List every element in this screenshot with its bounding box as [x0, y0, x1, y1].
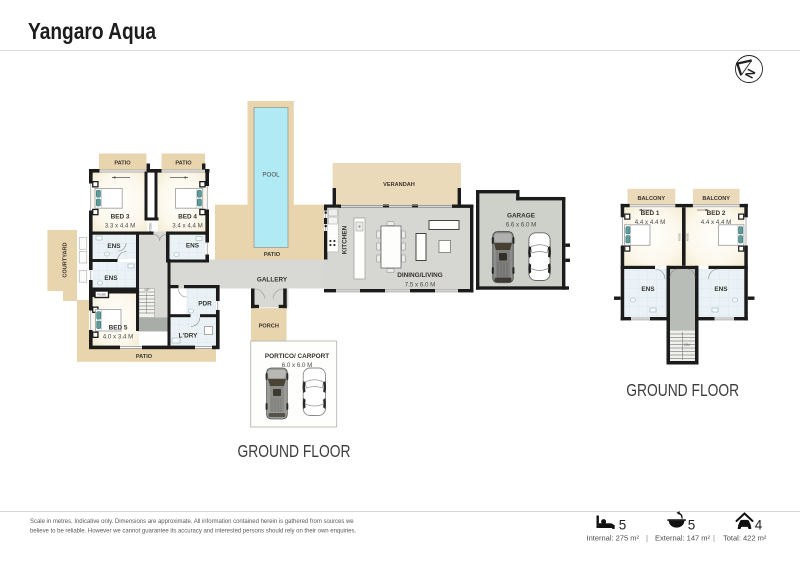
svg-text:6.0 x 6.0 M: 6.0 x 6.0 M	[282, 362, 313, 369]
svg-text:3.4 x 4.4 M: 3.4 x 4.4 M	[172, 223, 203, 230]
svg-text:BED 2: BED 2	[707, 210, 726, 217]
svg-text:7.5 x 6.0 M: 7.5 x 6.0 M	[405, 282, 436, 289]
svg-text:Total: 422 m²: Total: 422 m²	[723, 534, 767, 543]
svg-text:KITCHEN: KITCHEN	[341, 225, 348, 254]
svg-text:believe to be reliable. Howev: believe to be reliable. However we canno…	[30, 529, 356, 535]
svg-text:ENS: ENS	[104, 275, 118, 282]
svg-text:COURTYARD: COURTYARD	[63, 242, 69, 277]
svg-text:Internal: 275 m²: Internal: 275 m²	[587, 534, 640, 543]
svg-text:Scale in metres. Indicative o: Scale in metres. Indicative only. Dimens…	[30, 519, 354, 525]
svg-text:ENS: ENS	[714, 286, 728, 293]
svg-text:External: 147 m²: External: 147 m²	[655, 534, 711, 543]
svg-text:GROUND FLOOR: GROUND FLOOR	[626, 380, 739, 400]
svg-text:BED 4: BED 4	[178, 214, 197, 221]
svg-text:ROBE: ROBE	[686, 233, 690, 242]
svg-text:UP: UP	[145, 288, 151, 292]
svg-text:GALLERY: GALLERY	[257, 277, 288, 284]
svg-text:GROUND FLOOR: GROUND FLOOR	[238, 441, 351, 461]
svg-text:ROBE: ROBE	[97, 293, 106, 297]
svg-text:POOL: POOL	[262, 172, 280, 179]
svg-text:BED 5: BED 5	[109, 325, 128, 332]
svg-text:4.0 x 3.4 M: 4.0 x 3.4 M	[103, 334, 134, 341]
svg-text:L'DRY: L'DRY	[179, 333, 198, 340]
svg-text:3.3 x 4.4 M: 3.3 x 4.4 M	[105, 223, 136, 230]
svg-text:6.6 x 6.0 M: 6.6 x 6.0 M	[506, 222, 537, 229]
svg-text:BALCONY: BALCONY	[637, 196, 665, 202]
svg-text:DINING/LIVING: DINING/LIVING	[397, 272, 442, 279]
svg-text:PDR: PDR	[198, 301, 212, 308]
svg-text:Yangaro Aqua: Yangaro Aqua	[28, 18, 157, 44]
svg-text:ENS: ENS	[186, 243, 200, 250]
svg-text:BALCONY: BALCONY	[702, 196, 730, 202]
svg-text:PORCH: PORCH	[259, 324, 279, 330]
svg-text:ENS: ENS	[641, 286, 655, 293]
svg-text:4: 4	[755, 518, 763, 533]
svg-text:PATIO: PATIO	[136, 354, 153, 360]
svg-text:PATIO: PATIO	[114, 161, 131, 167]
svg-text:|: |	[646, 534, 648, 543]
svg-text:|: |	[713, 534, 715, 543]
svg-text:BED 3: BED 3	[111, 214, 130, 221]
svg-text:DN: DN	[684, 343, 690, 347]
svg-text:GARAGE: GARAGE	[507, 213, 536, 220]
svg-text:BED 1: BED 1	[641, 210, 660, 217]
svg-text:ROBE: ROBE	[678, 233, 682, 242]
svg-text:5: 5	[619, 518, 627, 533]
svg-text:ENS: ENS	[107, 243, 121, 250]
svg-text:PATIO: PATIO	[264, 252, 281, 258]
svg-text:PORTICO/ CARPORT: PORTICO/ CARPORT	[265, 353, 329, 360]
svg-text:VERANDAH: VERANDAH	[383, 182, 415, 188]
svg-text:PATIO: PATIO	[175, 161, 192, 167]
svg-text:5: 5	[688, 518, 696, 533]
